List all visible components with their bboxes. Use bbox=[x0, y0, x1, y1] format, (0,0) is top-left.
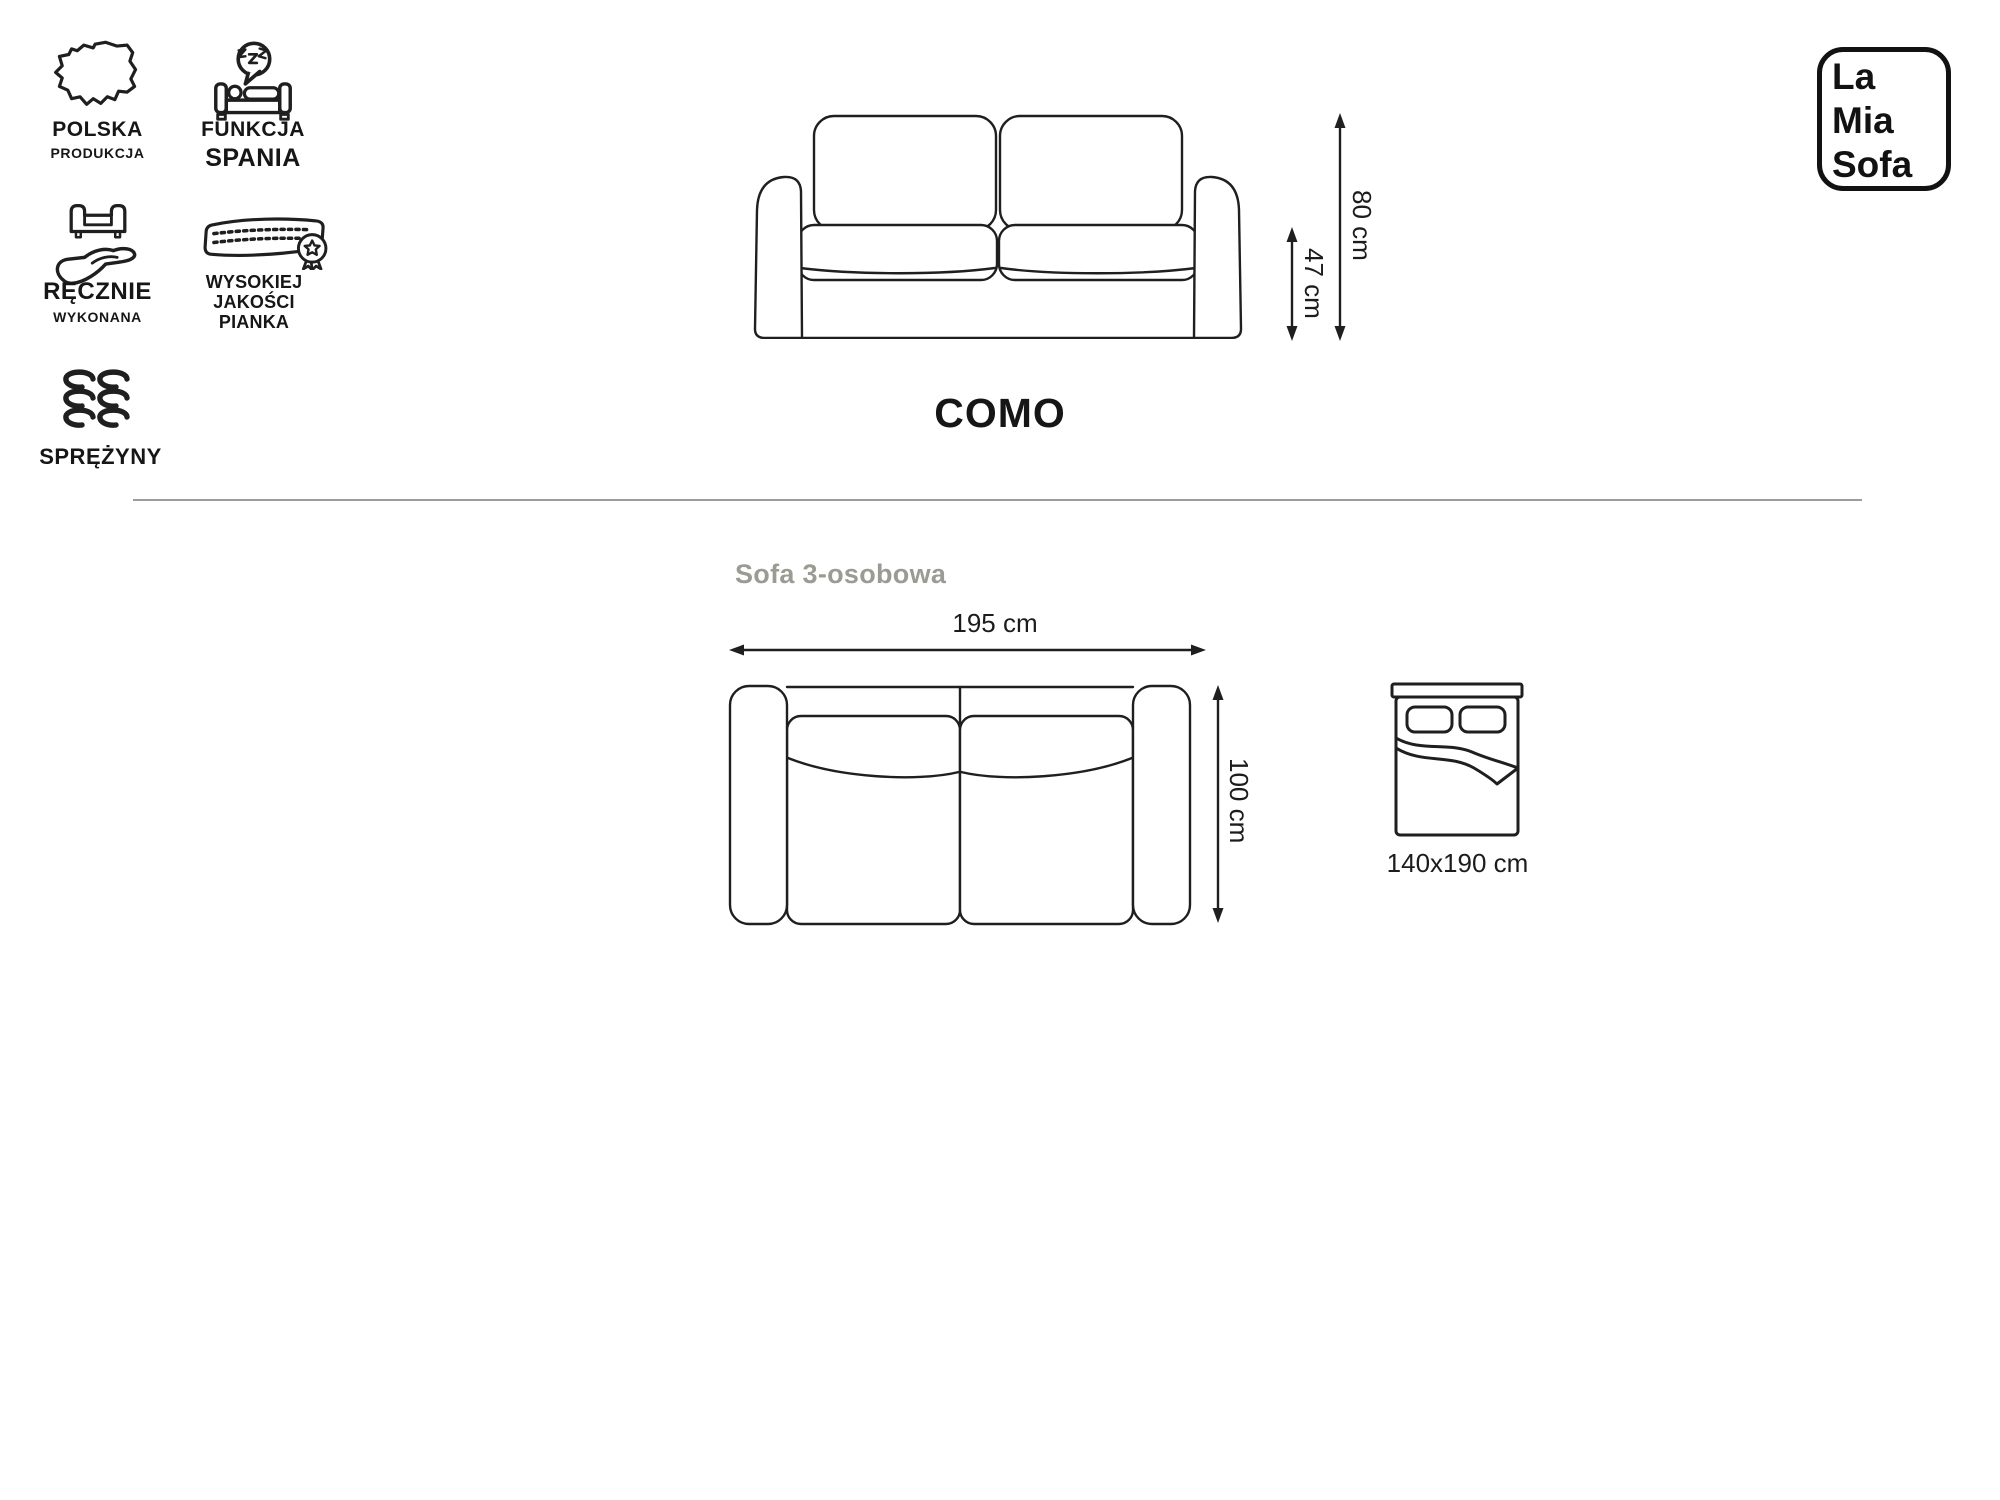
bed-headboard bbox=[1392, 684, 1522, 697]
sofa-front-view bbox=[752, 113, 1244, 339]
badge-sprezyny-title: SPRĘŻYNY bbox=[28, 444, 173, 470]
top-seat-right bbox=[960, 716, 1133, 924]
bed-pillow-right bbox=[1460, 707, 1505, 732]
badge-funkcja-spania: FUNKCJA SPANIA bbox=[180, 118, 326, 173]
top-armrest-right bbox=[1133, 686, 1190, 924]
sleep-function-icon bbox=[203, 40, 303, 124]
sofa-top-view bbox=[728, 684, 1192, 926]
handmade-icon bbox=[50, 198, 146, 288]
brand-logo-line2: Mia bbox=[1832, 99, 1946, 143]
foam-quality-icon bbox=[202, 214, 330, 270]
poland-map-icon bbox=[50, 38, 144, 118]
top-seat-left bbox=[787, 716, 960, 924]
dimension-seat-height: 47 cm bbox=[1298, 248, 1329, 319]
badge-sprezyny: SPRĘŻYNY bbox=[28, 444, 173, 470]
brand-logo-line3: Sofa bbox=[1832, 143, 1946, 187]
armrest-left bbox=[755, 177, 802, 338]
product-sheet: POLSKA PRODUKCJA FUNKCJA SPANIA RĘCZNIE … bbox=[0, 0, 2000, 1500]
dimension-depth: 100 cm bbox=[1223, 758, 1254, 843]
bed-pillow-left bbox=[1407, 707, 1452, 732]
badge-funkcja-subtitle: SPANIA bbox=[180, 144, 326, 173]
badge-pianka-subtitle: JAKOŚCI PIANKA bbox=[178, 292, 330, 332]
product-name: COMO bbox=[850, 390, 1150, 437]
badge-recznie-title: RĘCZNIE bbox=[25, 278, 170, 306]
top-armrest-left bbox=[730, 686, 787, 924]
springs-icon bbox=[58, 366, 142, 438]
dimension-width: 195 cm bbox=[895, 608, 1095, 639]
bed-icon bbox=[1390, 682, 1524, 838]
dimension-total-height: 80 cm bbox=[1346, 190, 1377, 261]
badge-pianka-title: WYSOKIEJ bbox=[178, 272, 330, 292]
variant-label: Sofa 3-osobowa bbox=[735, 559, 946, 590]
back-cushion-right bbox=[1000, 116, 1182, 230]
armrest-right bbox=[1194, 177, 1241, 338]
bed-body bbox=[1396, 697, 1518, 835]
badge-pianka: WYSOKIEJ JAKOŚCI PIANKA bbox=[178, 272, 330, 332]
back-cushion-left bbox=[814, 116, 996, 230]
badge-recznie-subtitle: WYKONANA bbox=[25, 309, 170, 325]
brand-logo-line1: La bbox=[1832, 55, 1946, 99]
badge-polska-title: POLSKA bbox=[25, 118, 170, 142]
badge-polska: POLSKA PRODUKCJA bbox=[25, 118, 170, 161]
badge-funkcja-title: FUNKCJA bbox=[180, 118, 326, 142]
bed-size-label: 140x190 cm bbox=[1380, 848, 1535, 879]
brand-logo: La Mia Sofa bbox=[1817, 47, 1951, 191]
badge-polska-subtitle: PRODUKCJA bbox=[25, 145, 170, 161]
badge-recznie: RĘCZNIE WYKONANA bbox=[25, 278, 170, 325]
section-divider bbox=[133, 499, 1862, 501]
dimension-arrow-width bbox=[728, 641, 1207, 659]
